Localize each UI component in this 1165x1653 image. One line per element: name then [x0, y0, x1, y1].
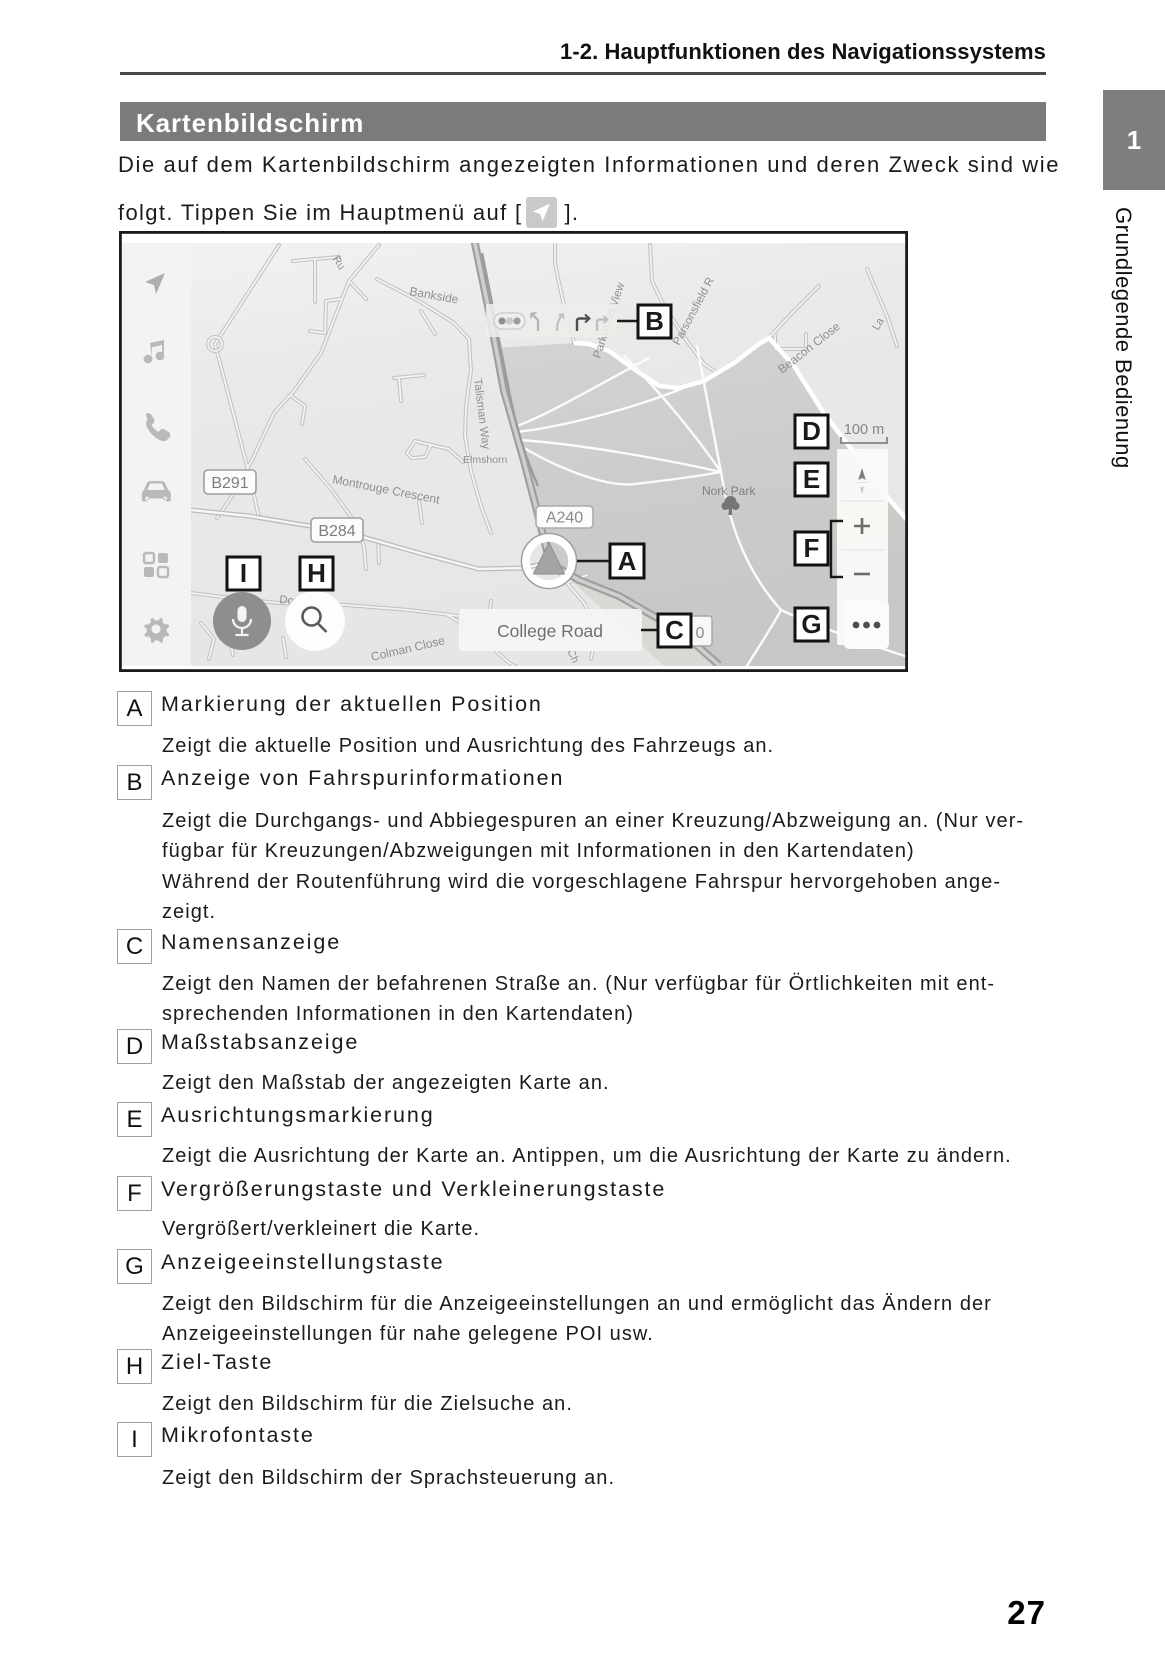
- svg-text:I: I: [240, 558, 247, 588]
- svg-text:A: A: [618, 546, 637, 576]
- svg-text:E: E: [803, 464, 820, 494]
- svg-text:B: B: [645, 306, 664, 336]
- svg-text:H: H: [307, 558, 326, 588]
- svg-text:A240: A240: [546, 510, 583, 527]
- svg-text:D: D: [802, 416, 821, 446]
- svg-text:College Road: College Road: [497, 621, 603, 641]
- svg-text:100 m: 100 m: [844, 422, 884, 438]
- svg-text:G: G: [801, 609, 821, 639]
- svg-text:0: 0: [696, 625, 705, 642]
- svg-text:Elmshorn: Elmshorn: [463, 454, 508, 466]
- svg-text:Nork Park: Nork Park: [702, 484, 756, 498]
- svg-text:C: C: [665, 615, 684, 645]
- svg-text:B291: B291: [211, 475, 248, 492]
- svg-text:F: F: [804, 533, 820, 563]
- svg-text:B284: B284: [318, 523, 355, 540]
